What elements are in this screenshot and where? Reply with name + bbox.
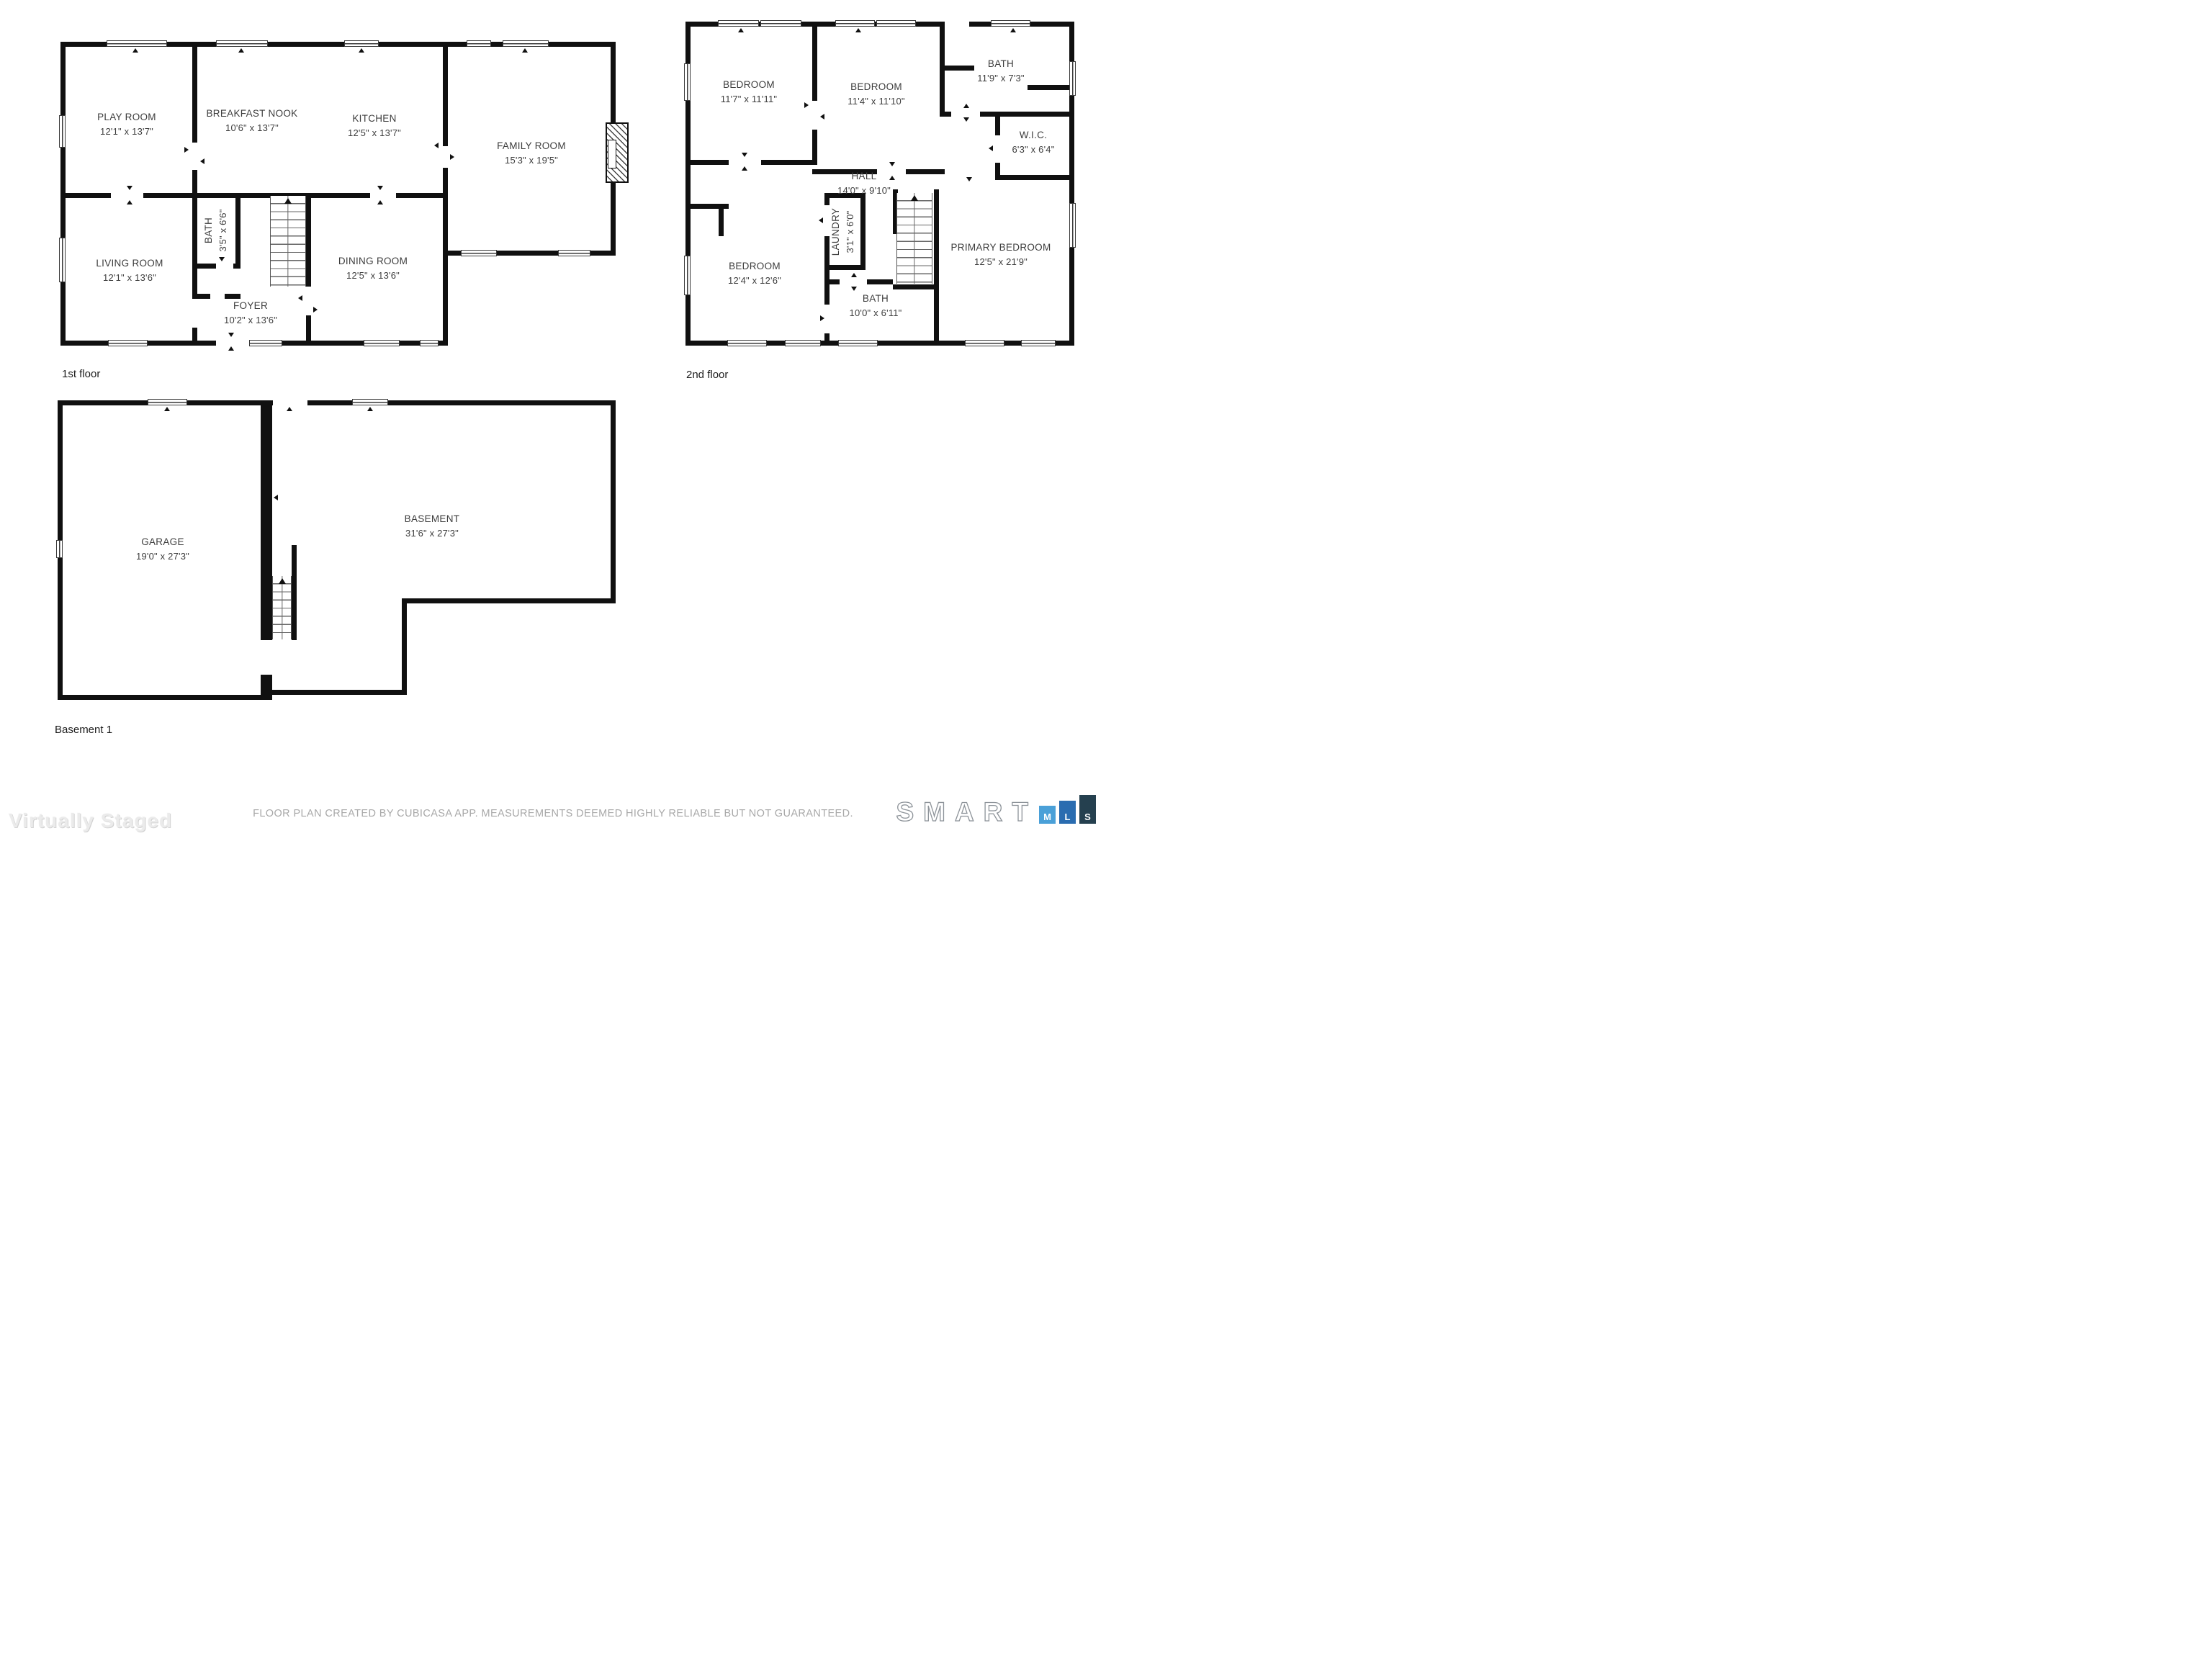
door-arrow-icon [164,407,170,411]
room-label-foyer: FOYER 10'2" x 13'6" [224,299,277,326]
wall [443,168,448,346]
wall [307,400,352,405]
wall [761,160,812,165]
wall [396,193,443,198]
wall [60,42,66,346]
window [684,63,691,101]
room-dims: 15'3" x 19'5" [497,154,566,167]
window [108,340,148,346]
wall [611,400,616,603]
room-label-bedroom-3: BEDROOM 12'4" x 12'6" [728,259,781,287]
door-arrow-icon [287,407,292,411]
window [503,40,549,47]
door-arrow-icon [742,153,747,157]
room-dims: 10'6" x 13'7" [207,122,298,135]
door-arrow-icon [127,186,132,190]
wall [58,400,63,540]
wall [829,279,840,284]
wall [867,279,893,284]
room-name: BASEMENT [405,512,460,527]
room-label-bath: BATH 3'5" x 6'6" [202,209,229,251]
room-name: FOYER [224,299,277,314]
room-name: BREAKFAST NOOK [207,107,298,122]
basement-plan: GARAGE 19'0" x 27'3" BASEMENT 31'6" x 27… [58,400,616,700]
room-name: HALL [837,169,891,184]
door-arrow-icon [851,287,857,291]
window [59,238,66,282]
window [785,340,821,346]
window [352,399,388,405]
second-floor-plan: BEDROOM 11'7" x 11'11" BEDROOM 11'4" x 1… [685,22,1074,346]
room-name: BATH [977,57,1025,72]
window [838,340,878,346]
wall [194,264,216,269]
wall [192,328,197,341]
room-dims: 3'1" x 6'0" [844,208,857,256]
wall [306,315,311,341]
room-dims: 3'5" x 6'6" [217,209,230,251]
staircase [272,576,292,639]
room-name: FAMILY ROOM [497,139,566,154]
door-arrow-icon [820,114,824,120]
door-arrow-icon [377,186,383,190]
room-dims: 19'0" x 27'3" [136,550,189,563]
window [148,399,187,405]
wall [940,112,951,117]
wall [824,333,829,341]
door-arrow-icon [200,158,204,164]
window [876,20,916,27]
door-arrow-icon [804,102,809,108]
door-arrow-icon [359,48,364,53]
wall [192,47,197,143]
room-label-wic: W.I.C. 6'3" x 6'4" [1012,128,1054,156]
window [249,340,282,346]
door-arrow-icon [889,162,895,166]
room-dims: 12'4" x 12'6" [728,274,781,287]
room-label-play-room: PLAY ROOM 12'1" x 13'7" [97,110,156,138]
mls-block-m: M [1039,806,1056,824]
fireplace-hearth [608,140,616,168]
room-dims: 12'5" x 13'7" [348,127,401,140]
wall [58,400,148,405]
window [558,250,590,256]
room-dims: 14'0" x 9'10" [837,184,891,197]
door-arrow-icon [274,495,278,500]
wall [812,130,817,165]
floorplan-sheet: { "floors": { "first": { "label": "1st f… [0,0,1106,829]
room-dims: 31'6" x 27'3" [405,527,460,540]
door-arrow-icon [132,48,138,53]
room-name: BATH [202,209,217,251]
wall [824,193,829,205]
wall [860,193,866,270]
door-arrow-icon [963,104,969,108]
room-dims: 12'1" x 13'6" [96,271,163,284]
wall [58,695,272,700]
door-arrow-icon [377,200,383,204]
wall [306,198,311,287]
wall [812,27,817,101]
room-label-hall: HALL 14'0" x 9'10" [837,169,891,197]
room-name: PLAY ROOM [97,110,156,125]
wall [719,204,724,236]
door-arrow-icon [228,333,234,337]
window [107,40,167,47]
window [835,20,875,27]
window [1069,203,1076,248]
wall [66,193,111,198]
wall [906,169,945,174]
staircase [270,196,306,287]
window [59,115,66,148]
room-name: BEDROOM [728,259,781,274]
window [420,340,439,346]
room-name: LAUNDRY [829,208,844,256]
wall [192,198,197,299]
first-floor-label: 1st floor [62,368,100,380]
staircase [896,193,932,284]
wall [945,66,974,71]
first-floor-plan: PLAY ROOM 12'1" x 13'7" BREAKFAST NOOK 1… [60,42,634,346]
window [467,40,491,47]
wall [265,690,407,695]
room-label-bath-lower: BATH 10'0" x 6'11" [850,292,902,319]
wall [194,294,210,299]
smart-mls-wordmark: SMART [896,800,1038,824]
room-label-bedroom-1: BEDROOM 11'7" x 11'11" [721,78,777,105]
window [684,256,691,295]
second-floor-label: 2nd floor [686,369,728,381]
room-name: LIVING ROOM [96,256,163,271]
window [364,340,400,346]
room-label-basement: BASEMENT 31'6" x 27'3" [405,512,460,539]
door-arrow-icon [298,295,302,301]
door-arrow-icon [855,28,861,32]
room-dims: 6'3" x 6'4" [1012,143,1054,156]
wall [261,405,272,640]
wall [402,598,616,603]
door-arrow-icon [450,154,454,160]
room-dims: 10'2" x 13'6" [224,314,277,327]
mls-block-s: S [1079,795,1096,824]
wall [443,47,448,146]
room-name: BEDROOM [848,80,904,95]
door-arrow-icon [963,117,969,122]
wall [235,198,240,264]
door-opening [216,341,249,346]
window [718,20,759,27]
door-arrow-icon [228,346,234,351]
window [760,20,801,27]
room-name: W.I.C. [1012,128,1054,143]
wall [934,189,939,341]
door-arrow-icon [742,166,747,171]
room-label-laundry: LAUNDRY 3'1" x 6'0" [829,208,856,256]
door-arrow-icon [820,315,824,321]
room-label-bath-upper: BATH 11'9" x 7'3" [977,57,1025,84]
wall [316,193,370,198]
room-dims: 11'4" x 11'10" [848,95,904,108]
window [461,250,497,256]
wall [187,400,273,405]
room-dims: 11'7" x 11'11" [721,93,777,106]
door-arrow-icon [184,147,189,153]
smart-mls-logo: SMART M L S [896,795,1096,824]
room-label-bedroom-2: BEDROOM 11'4" x 11'10" [848,80,904,107]
fireplace [606,122,629,183]
door-arrow-icon [127,200,132,204]
door-arrow-icon [738,28,744,32]
wall [233,264,240,269]
room-label-family-room: FAMILY ROOM 15'3" x 19'5" [497,139,566,166]
window [344,40,379,47]
door-arrow-icon [819,217,823,223]
wall [980,112,1074,117]
window [727,340,767,346]
room-name: PRIMARY BEDROOM [950,240,1051,256]
door-arrow-icon [219,257,225,261]
door-arrow-icon [966,177,972,181]
window [1021,340,1056,346]
room-label-kitchen: KITCHEN 12'5" x 13'7" [348,112,401,139]
room-name: DINING ROOM [338,254,408,269]
wall [995,175,1074,180]
room-label-dining-room: DINING ROOM 12'5" x 13'6" [338,254,408,282]
wall [402,598,407,695]
door-arrow-icon [367,407,373,411]
wall [1028,85,1074,90]
room-dims: 12'5" x 21'9" [950,256,1051,269]
room-dims: 10'0" x 6'11" [850,307,902,320]
door-arrow-icon [851,273,857,277]
room-name: GARAGE [136,535,189,550]
wall [292,545,297,640]
room-name: BEDROOM [721,78,777,93]
wall [691,160,729,165]
mls-blocks: M L S [1039,795,1096,824]
door-arrow-icon [313,307,318,313]
wall [388,400,616,405]
room-label-living-room: LIVING ROOM 12'1" x 13'6" [96,256,163,284]
door-arrow-icon [1010,28,1016,32]
door-arrow-icon [238,48,244,53]
room-dims: 12'5" x 13'6" [338,269,408,282]
room-label-breakfast-nook: BREAKFAST NOOK 10'6" x 13'7" [207,107,298,134]
window [965,340,1004,346]
mls-block-l: L [1059,801,1076,824]
wall [940,22,945,112]
room-name: BATH [850,292,902,307]
door-arrow-icon [434,143,439,148]
room-dims: 12'1" x 13'7" [97,125,156,138]
door-arrow-icon [522,48,528,53]
room-label-primary-bedroom: PRIMARY BEDROOM 12'5" x 21'9" [950,240,1051,268]
room-name: KITCHEN [348,112,401,127]
wall [824,270,829,305]
window [216,40,268,47]
basement-floor-label: Basement 1 [55,724,112,736]
window [56,540,63,558]
room-label-garage: GARAGE 19'0" x 27'3" [136,535,189,562]
wall [58,558,63,700]
window [991,20,1030,27]
wall [261,675,272,700]
door-arrow-icon [989,145,993,151]
window [1069,61,1076,96]
wall [824,265,866,270]
wall [893,284,939,289]
room-dims: 11'9" x 7'3" [977,72,1025,85]
wall [995,117,1000,135]
